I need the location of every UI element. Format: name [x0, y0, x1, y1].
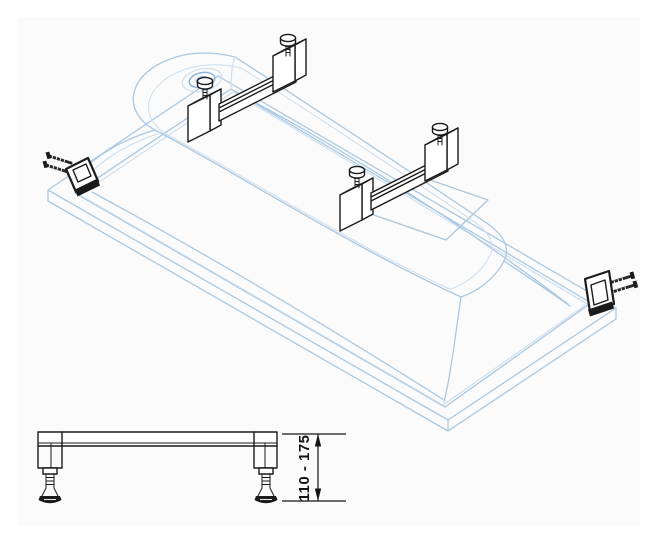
installation-diagram: 110 - 175: [0, 0, 657, 542]
dimension-label: 110 - 175: [296, 434, 313, 501]
diagram-svg: 110 - 175: [0, 0, 657, 542]
image-sheet: [17, 17, 640, 526]
